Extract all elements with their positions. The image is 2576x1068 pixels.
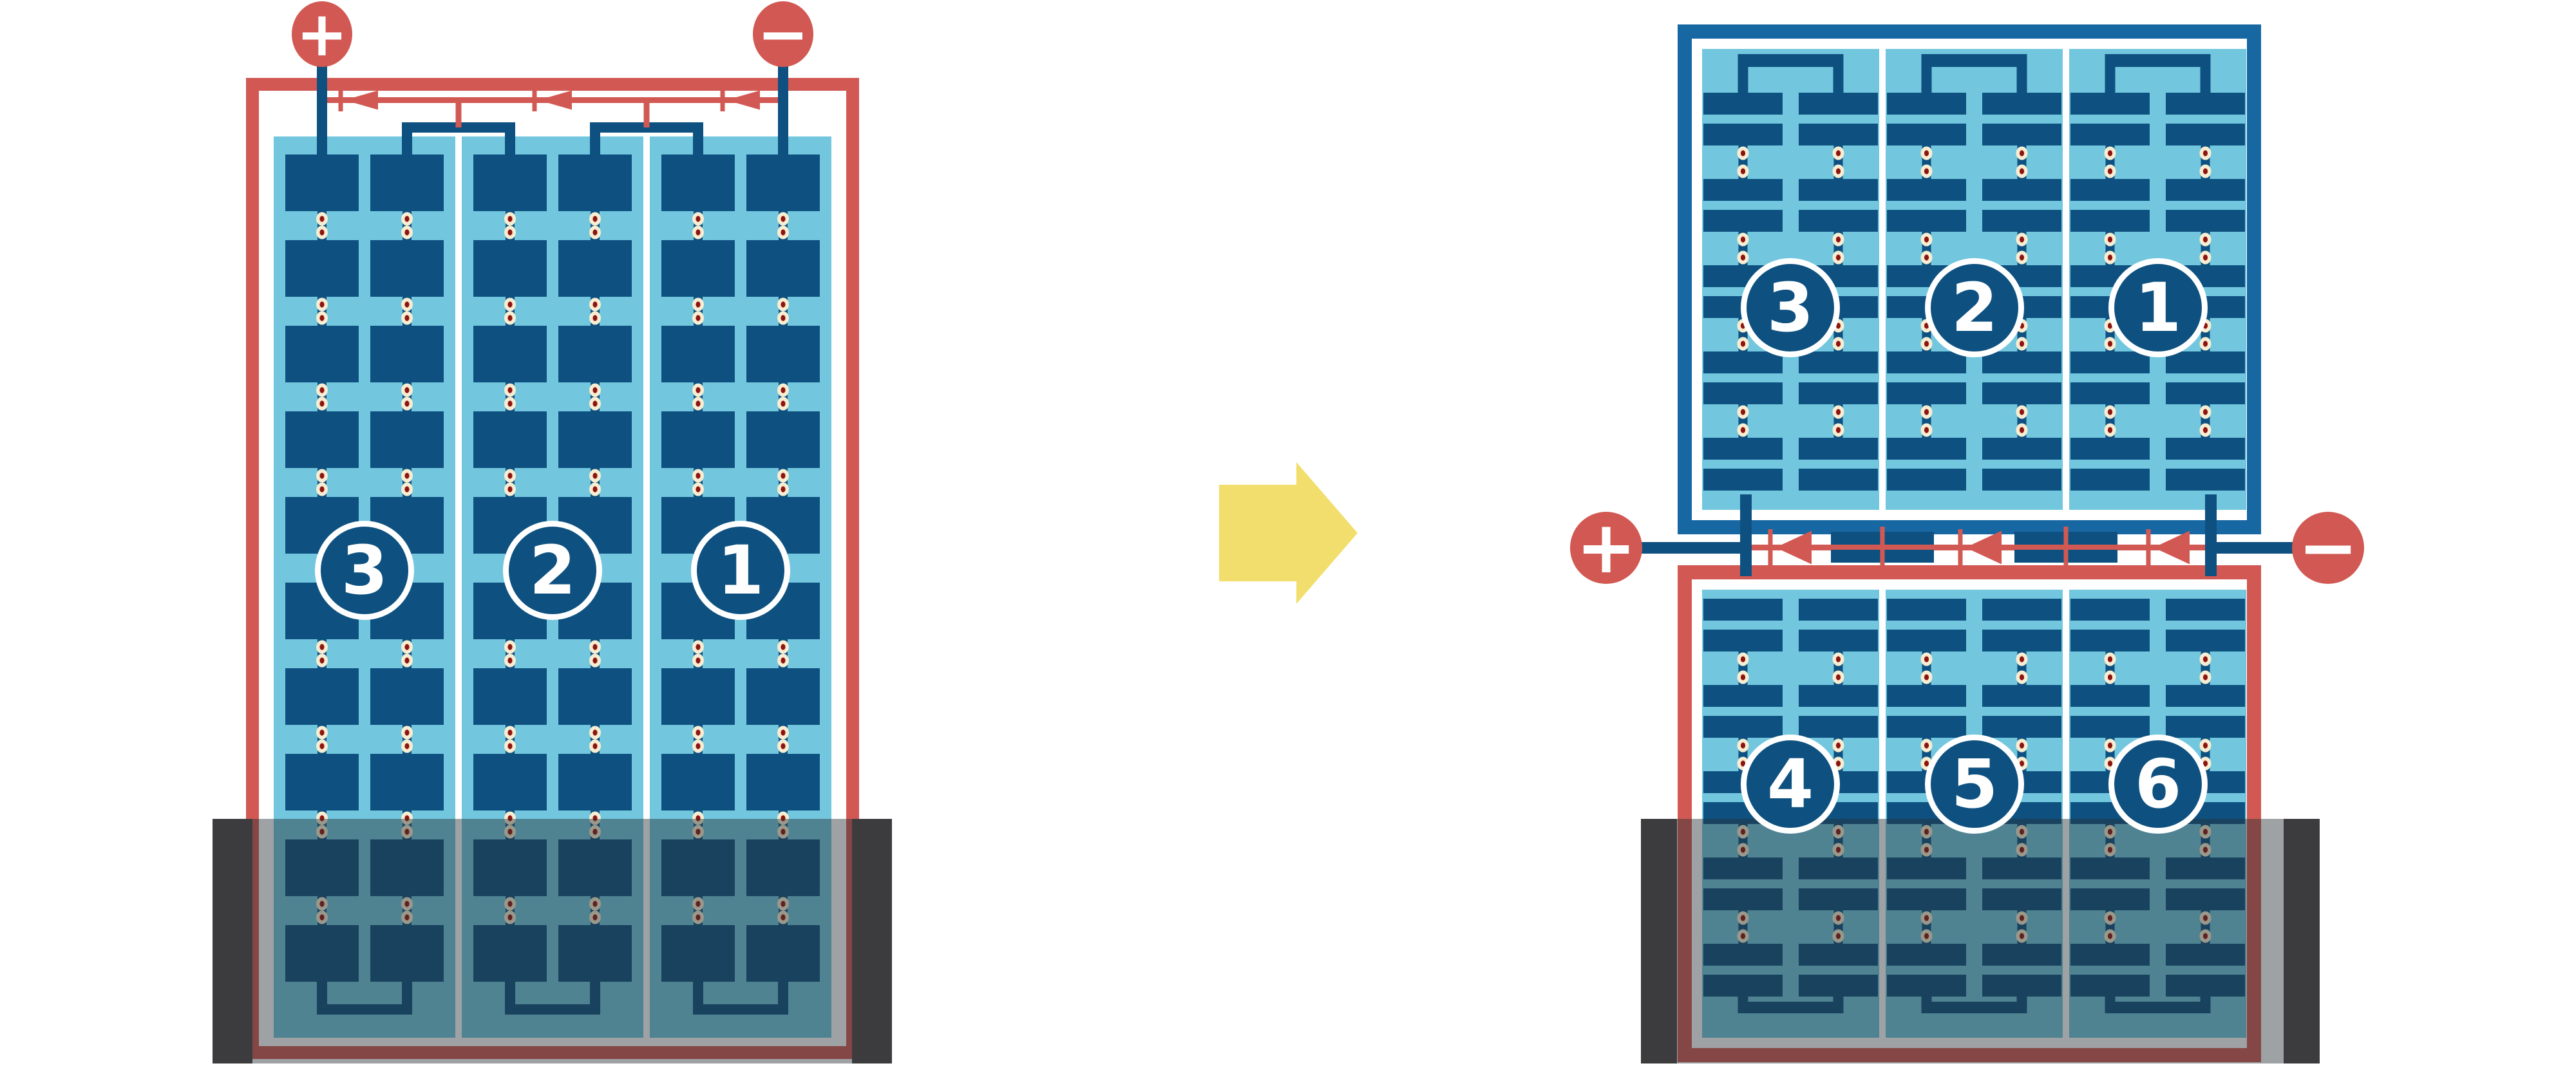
string-label: 2 (529, 537, 576, 604)
negative-terminal-label: − (757, 3, 809, 65)
right-bottom-module-string-badge-6: 6 (2108, 735, 2208, 834)
string-label: 5 (1951, 751, 1998, 818)
string-label: 4 (1767, 751, 1814, 818)
right-bottom-module-string-badge-5: 5 (1925, 735, 2024, 834)
plus-circle-icon: + (292, 1, 352, 67)
string-label: 3 (341, 537, 388, 604)
positive-terminal-label: + (296, 3, 348, 65)
right-top-module-string-badge-2: 2 (1925, 258, 2024, 357)
minus-circle-icon: − (753, 1, 813, 67)
string-label: 1 (2135, 274, 2181, 341)
right-top-module-string-badge-1: 1 (2108, 258, 2208, 357)
minus-circle-icon: − (2292, 512, 2364, 584)
string-label: 2 (1951, 274, 1998, 341)
left-module-string-badge-2: 2 (503, 521, 602, 620)
plus-circle-icon: + (1570, 512, 1642, 584)
right-top-module-string-badge-3: 3 (1741, 258, 1840, 357)
string-label: 6 (2135, 751, 2181, 818)
positive-terminal-label: + (1576, 512, 1636, 584)
left-module-string-badge-3: 3 (315, 521, 414, 620)
string-label: 3 (1767, 274, 1814, 341)
string-label: 1 (717, 537, 764, 604)
solar-panel-shading-diagram: 3 2 1 3 2 1 4 5 6 + − + − (0, 0, 2576, 1068)
negative-terminal-label: − (2298, 512, 2358, 584)
left-module-string-badge-1: 1 (691, 521, 790, 620)
right-bottom-module-string-badge-4: 4 (1741, 735, 1840, 834)
